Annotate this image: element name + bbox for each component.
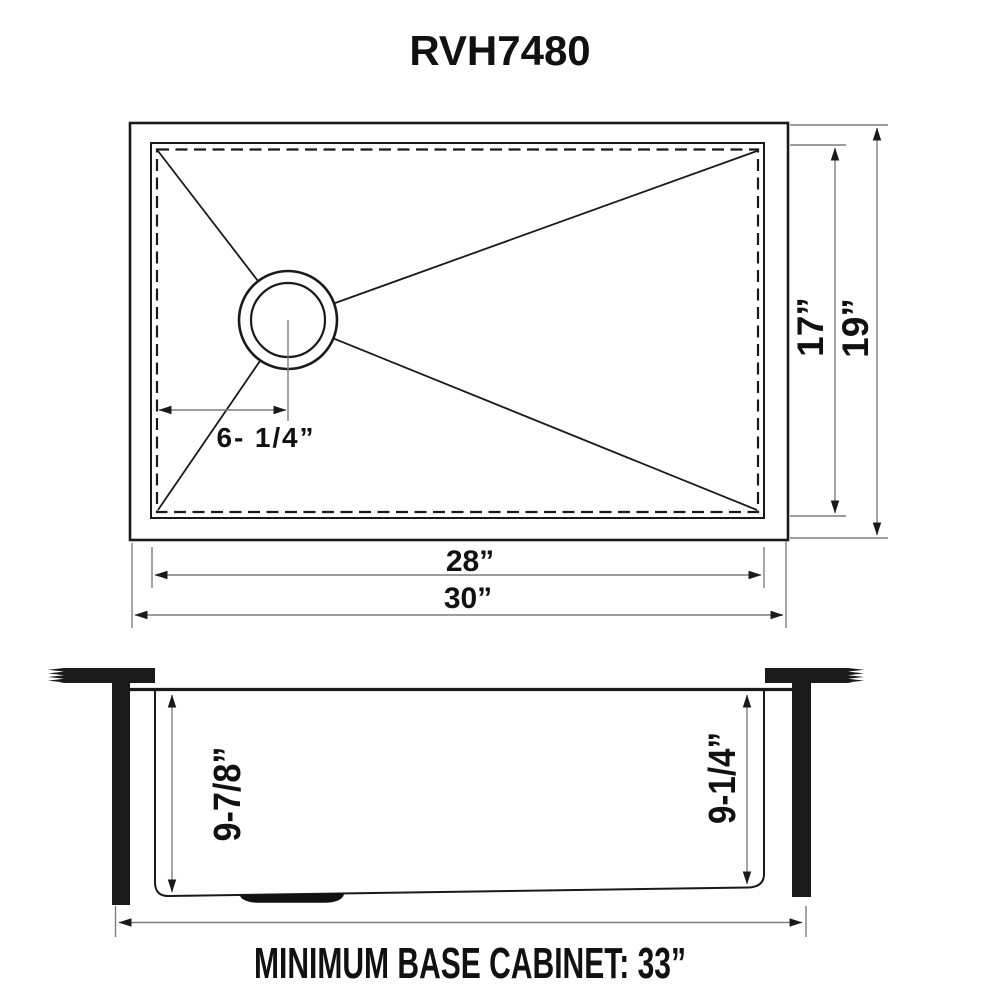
dims-front-to-back: 17” 19” xyxy=(790,125,888,538)
cabinet-wall-right xyxy=(792,683,811,897)
cabinet-wall-left xyxy=(112,683,130,905)
model-title: RVH7480 xyxy=(409,27,590,74)
dims-width: 28” 30” xyxy=(132,541,786,628)
sink-outer-outline xyxy=(130,123,788,540)
slope-line-bottom-right xyxy=(288,320,757,510)
label-bowl-width: 28” xyxy=(446,545,494,578)
sink-spec-sheet: 6- 1/4” 17” 19” 28” 30” xyxy=(0,0,1000,1000)
label-depth-right: 9-1/4” xyxy=(702,732,744,824)
label-depth-left: 9-7/8” xyxy=(207,747,249,842)
countertop-right xyxy=(765,668,864,683)
countertop-left xyxy=(48,668,155,683)
slope-line-top-right xyxy=(288,151,757,320)
sink-dimension-diagram: 6- 1/4” 17” 19” 28” 30” xyxy=(0,0,1000,1000)
side-view: 9-7/8” 9-1/4” MINIMUM BASE CABINET: 33” xyxy=(48,668,864,988)
top-view: 6- 1/4” xyxy=(130,123,788,540)
label-overall-front-to-back: 19” xyxy=(835,298,876,358)
label-drain-offset: 6- 1/4” xyxy=(217,422,314,453)
label-overall-width: 30” xyxy=(444,582,492,615)
label-bowl-front-to-back: 17” xyxy=(790,297,831,357)
label-base-cabinet: MINIMUM BASE CABINET: 33” xyxy=(254,939,686,988)
